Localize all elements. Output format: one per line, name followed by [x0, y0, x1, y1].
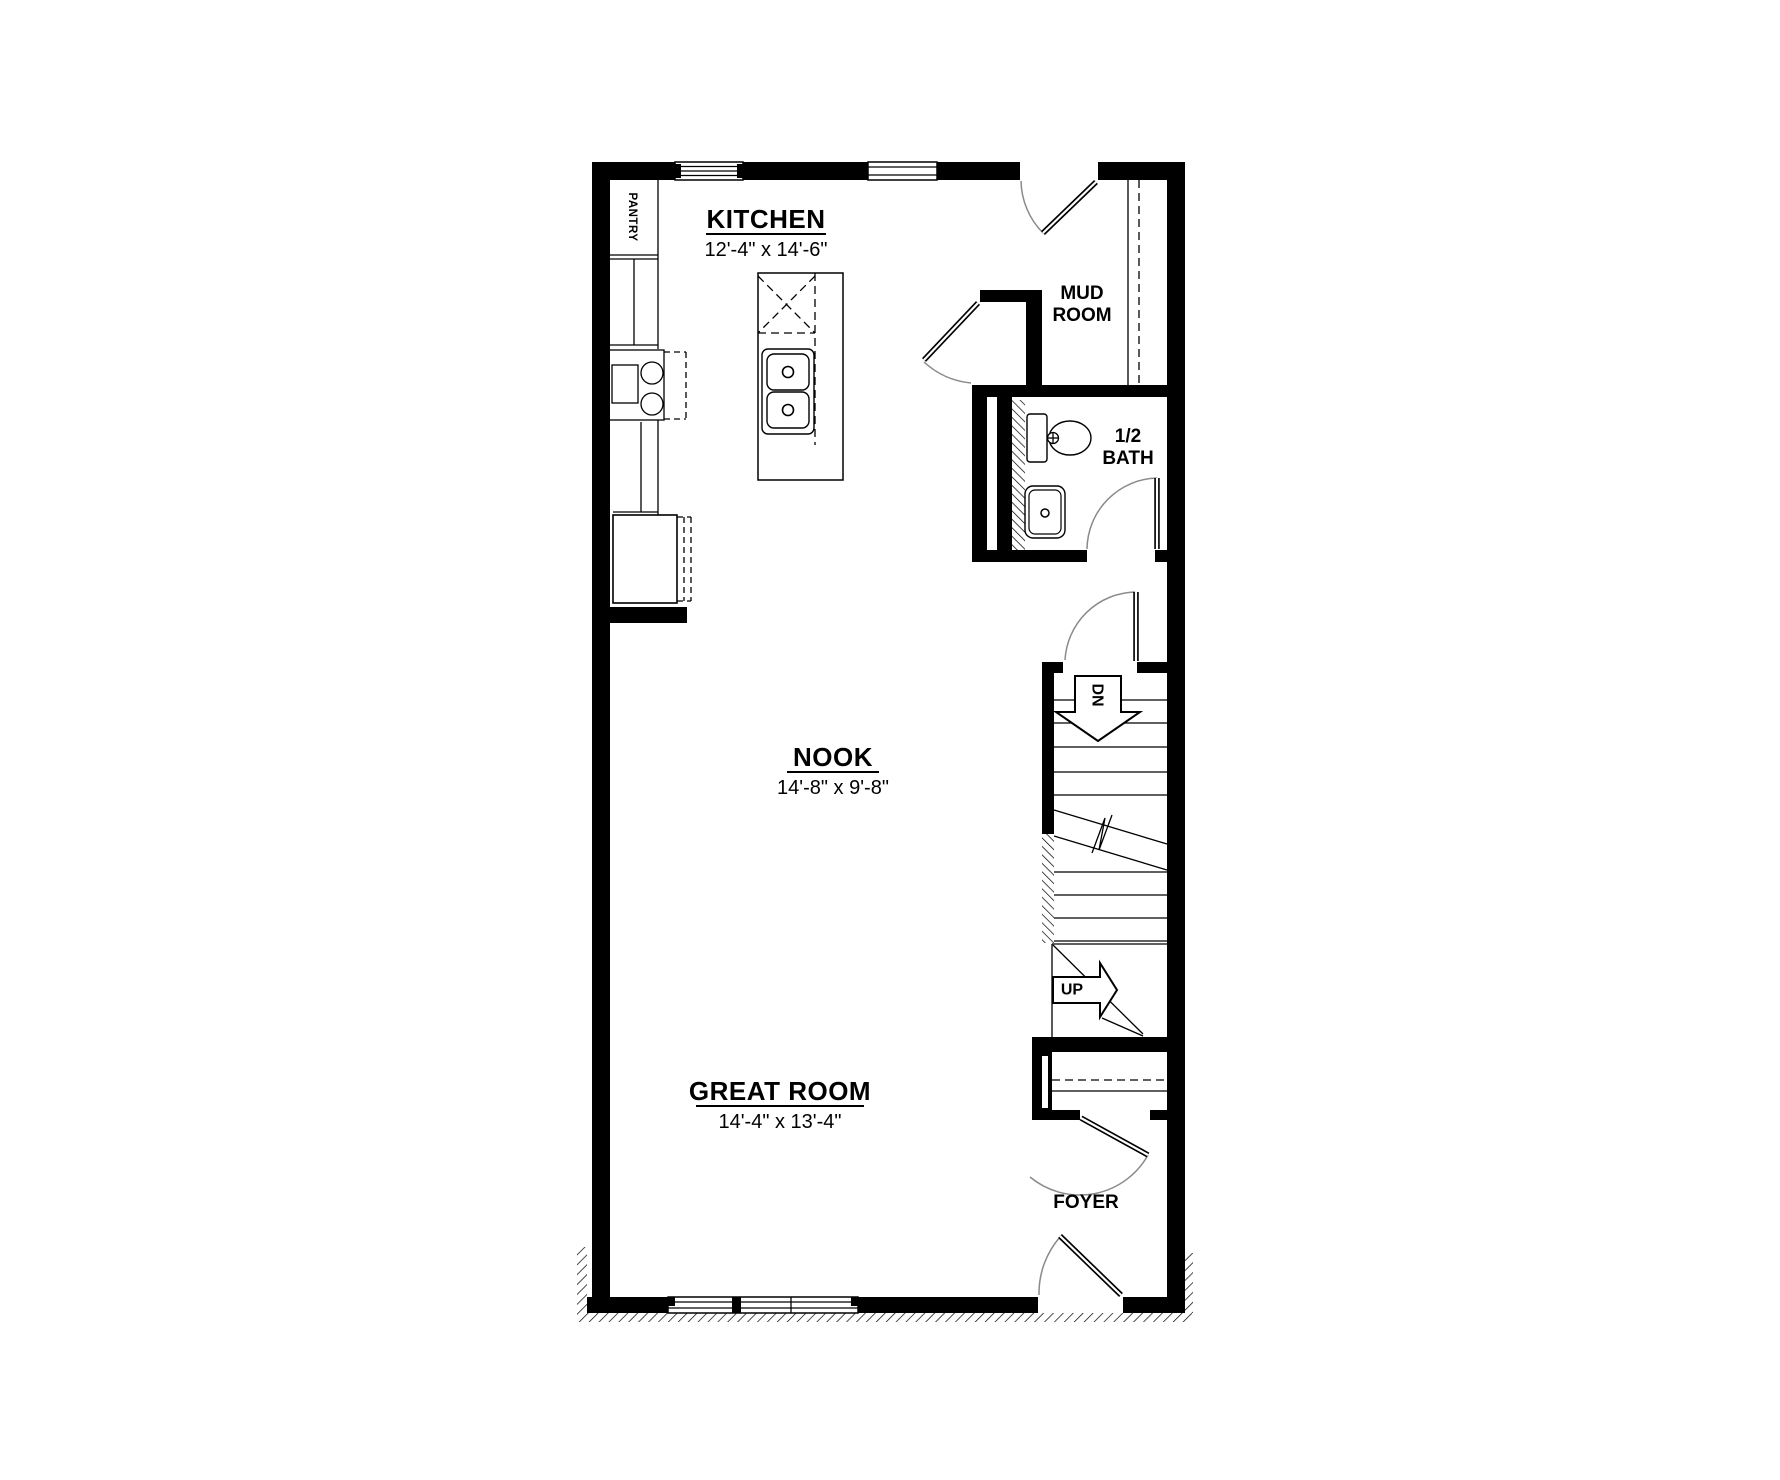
refrigerator [613, 515, 691, 603]
great-room-dims: 14'-4" x 13'-4" [718, 1111, 841, 1133]
toilet [1027, 414, 1091, 462]
bath-sink [1025, 486, 1065, 538]
nook-label: NOOK [793, 742, 873, 772]
top-window-2 [868, 162, 937, 180]
floor-plan: DN UP [0, 0, 1780, 1480]
mud-room-closet [1128, 180, 1139, 385]
front-entry-door [1039, 1236, 1121, 1295]
mud-room-label-line1: MUD [1060, 283, 1103, 304]
stairs-up-label: UP [1061, 982, 1084, 999]
half-bath-door [1087, 478, 1157, 549]
bath-wet-wall-hatch [1012, 400, 1025, 550]
nook-dims: 14'-8" x 9'-8" [777, 777, 889, 799]
half-bath-label-line1: 1/2 [1115, 426, 1141, 447]
mud-room-label-line2: ROOM [1052, 305, 1111, 326]
foyer-closet [1052, 1080, 1167, 1091]
kitchen-label: KITCHEN [706, 204, 825, 234]
kitchen-window [675, 162, 743, 180]
great-room-label: GREAT ROOM [689, 1076, 871, 1106]
up-arrow: UP [1053, 963, 1117, 1017]
stair-half-wall-hatch [1042, 834, 1054, 943]
stair-landing-door [1065, 592, 1136, 661]
down-arrow: DN [1056, 676, 1140, 741]
floor-plan-canvas: DN UP [0, 0, 1780, 1480]
foyer-label: FOYER [1053, 1192, 1119, 1213]
kitchen-mud-room-door [924, 303, 978, 383]
kitchen-island [758, 273, 843, 480]
great-room-window [668, 1297, 858, 1313]
pantry-label: PANTRY [626, 193, 638, 242]
stairs-down-label: DN [1089, 683, 1106, 706]
half-bath-label-line2: BATH [1102, 448, 1153, 469]
kitchen-dims: 12'-4" x 14'-6" [704, 239, 827, 261]
foyer-closet-door [1030, 1118, 1148, 1195]
range [607, 350, 686, 420]
mud-room-entry-door [1021, 181, 1096, 233]
